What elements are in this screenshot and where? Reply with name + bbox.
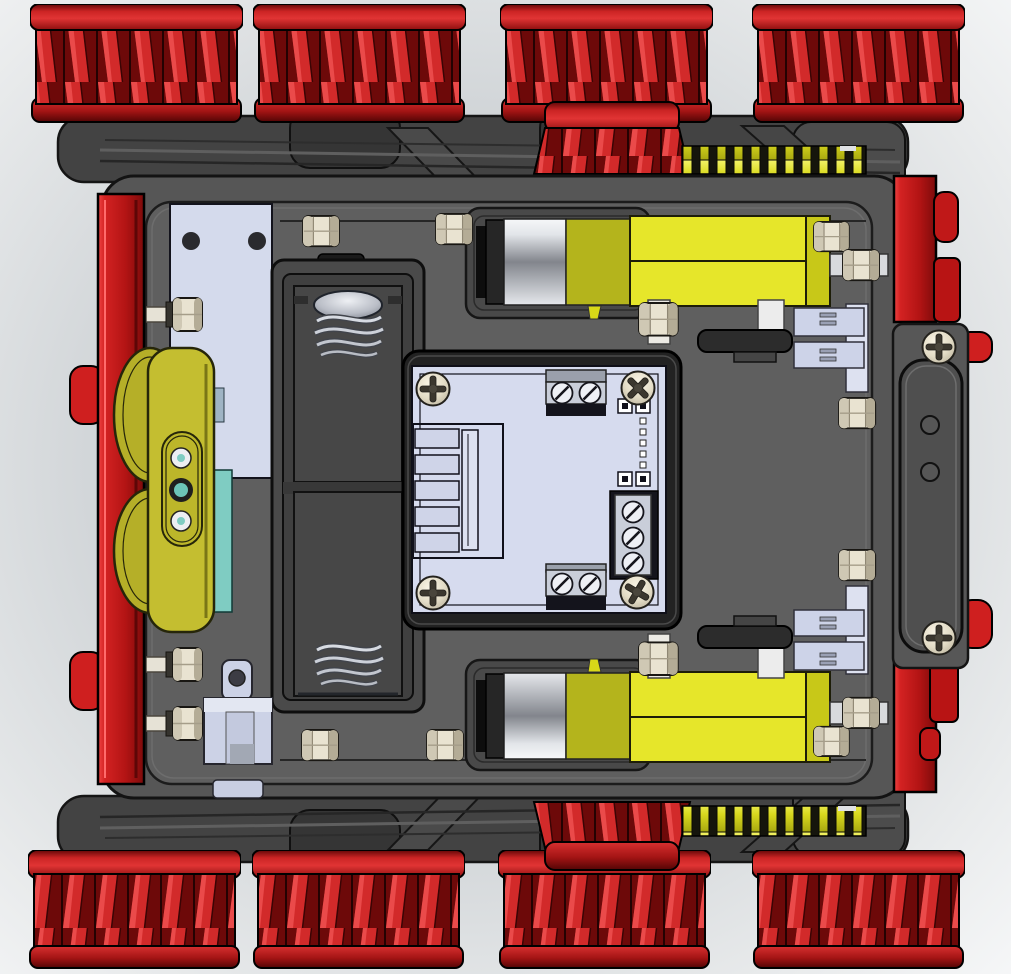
cover-panel	[900, 360, 962, 652]
drive-gear-top	[534, 102, 690, 174]
bracket-foot	[213, 780, 263, 798]
drive-gear-collar	[545, 842, 679, 870]
hex-nut-2	[436, 214, 472, 244]
connector-slot	[415, 507, 459, 526]
hex-nut-5	[839, 398, 875, 428]
wheel-top-2	[253, 4, 466, 122]
hex-nut-3	[302, 730, 338, 760]
wheel-bottom-2	[252, 850, 465, 968]
connector-slot	[415, 455, 459, 474]
spur-gear-top	[682, 146, 866, 174]
drive-gear-fins	[534, 128, 690, 174]
plate-hole	[248, 232, 266, 250]
pcb-assembly	[403, 351, 681, 629]
cover-hole	[921, 463, 939, 481]
spur-gear-bottom	[682, 806, 866, 836]
connector-slot	[415, 533, 459, 552]
wheel-bottom-1	[28, 850, 241, 968]
pcb-screw-1	[417, 373, 450, 406]
terminal-screw	[580, 574, 601, 595]
hex-nut-6	[839, 550, 875, 580]
terminal-screw	[552, 383, 573, 404]
terminal-screw	[552, 574, 573, 595]
terminal-screw	[623, 502, 644, 523]
spur-gear-teeth	[682, 146, 866, 174]
right-cover-module	[893, 324, 968, 668]
gear-glint	[840, 146, 856, 151]
terminal-block-right	[610, 491, 658, 579]
wheel-top-4	[752, 4, 965, 122]
wheel-top-1	[30, 4, 243, 122]
wheel-bottom-4	[752, 850, 965, 968]
pcb-screw-3	[417, 577, 450, 610]
connector-slot	[415, 481, 459, 500]
gear-glint	[838, 806, 856, 811]
terminal-screw	[580, 383, 601, 404]
cover-screw-top	[923, 331, 956, 364]
hex-nut-4	[427, 730, 463, 760]
cad-viewport	[0, 0, 1011, 974]
clevis-hole	[229, 670, 245, 686]
terminal-block-bottom	[546, 564, 606, 610]
battery-bay-bottom	[294, 492, 402, 696]
terminal-block-top	[546, 370, 606, 416]
connector-slot	[415, 429, 459, 448]
cover-screw-bottom	[923, 622, 956, 655]
drive-gear-bottom	[534, 802, 690, 870]
robot-assembly-render	[0, 0, 1011, 974]
battery-contact-dome	[314, 291, 382, 319]
battery-holder	[272, 254, 424, 712]
hex-nut-1	[303, 216, 339, 246]
cover-hole	[921, 416, 939, 434]
terminal-screw	[623, 528, 644, 549]
connector-bar	[462, 430, 478, 550]
terminal-screw	[623, 553, 644, 574]
plate-hole	[182, 232, 200, 250]
